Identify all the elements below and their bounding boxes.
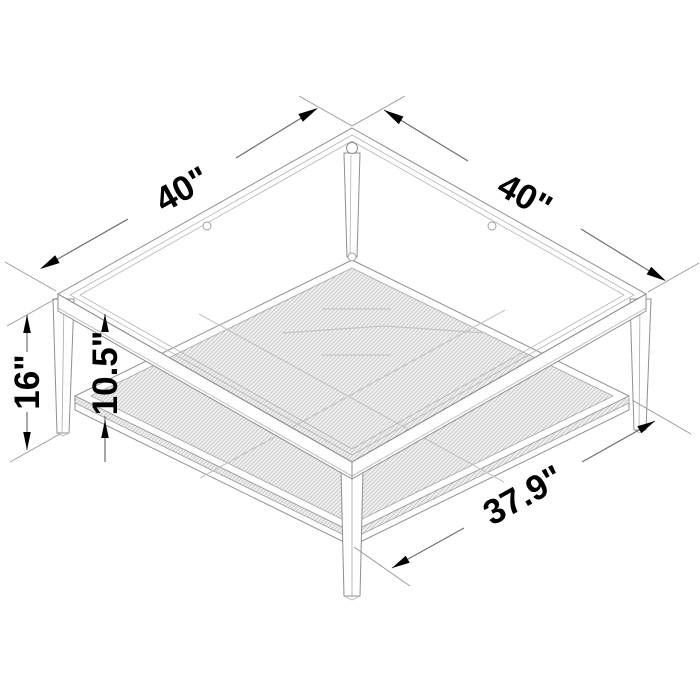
dimension-diagram-canvas: 40" 40" 16" 10.5" 37.9" (0, 0, 700, 700)
right-leg (630, 299, 651, 433)
dimension-top-right-40: 40" (384, 110, 666, 281)
front-leg (341, 469, 363, 600)
leg-mount-circle-top (347, 143, 358, 154)
frame-peg-right (488, 222, 496, 230)
arrowhead (101, 420, 109, 438)
dimension-label-top-right: 40" (491, 166, 559, 227)
arrowhead (40, 255, 60, 269)
arrowhead (384, 110, 403, 124)
arrowhead (647, 267, 666, 281)
arrowhead (392, 556, 410, 568)
leg-mount-circle-bottom (348, 253, 356, 261)
arrowhead (23, 315, 31, 333)
left-leg (53, 299, 74, 436)
frame-peg-left (203, 222, 211, 230)
dimension-clearance-10-5: 10.5" (86, 314, 125, 462)
arrowhead (298, 108, 318, 122)
coffee-table-dimension-diagram: 40" 40" 16" 10.5" 37.9" (0, 0, 700, 700)
dimension-top-left-40: 40" (40, 108, 318, 269)
arrowhead (23, 432, 31, 450)
dimension-label-height: 16" (8, 354, 47, 410)
dimension-label-clearance: 10.5" (86, 331, 125, 416)
back-leg (344, 153, 360, 261)
dimension-height-16: 16" (8, 315, 47, 450)
